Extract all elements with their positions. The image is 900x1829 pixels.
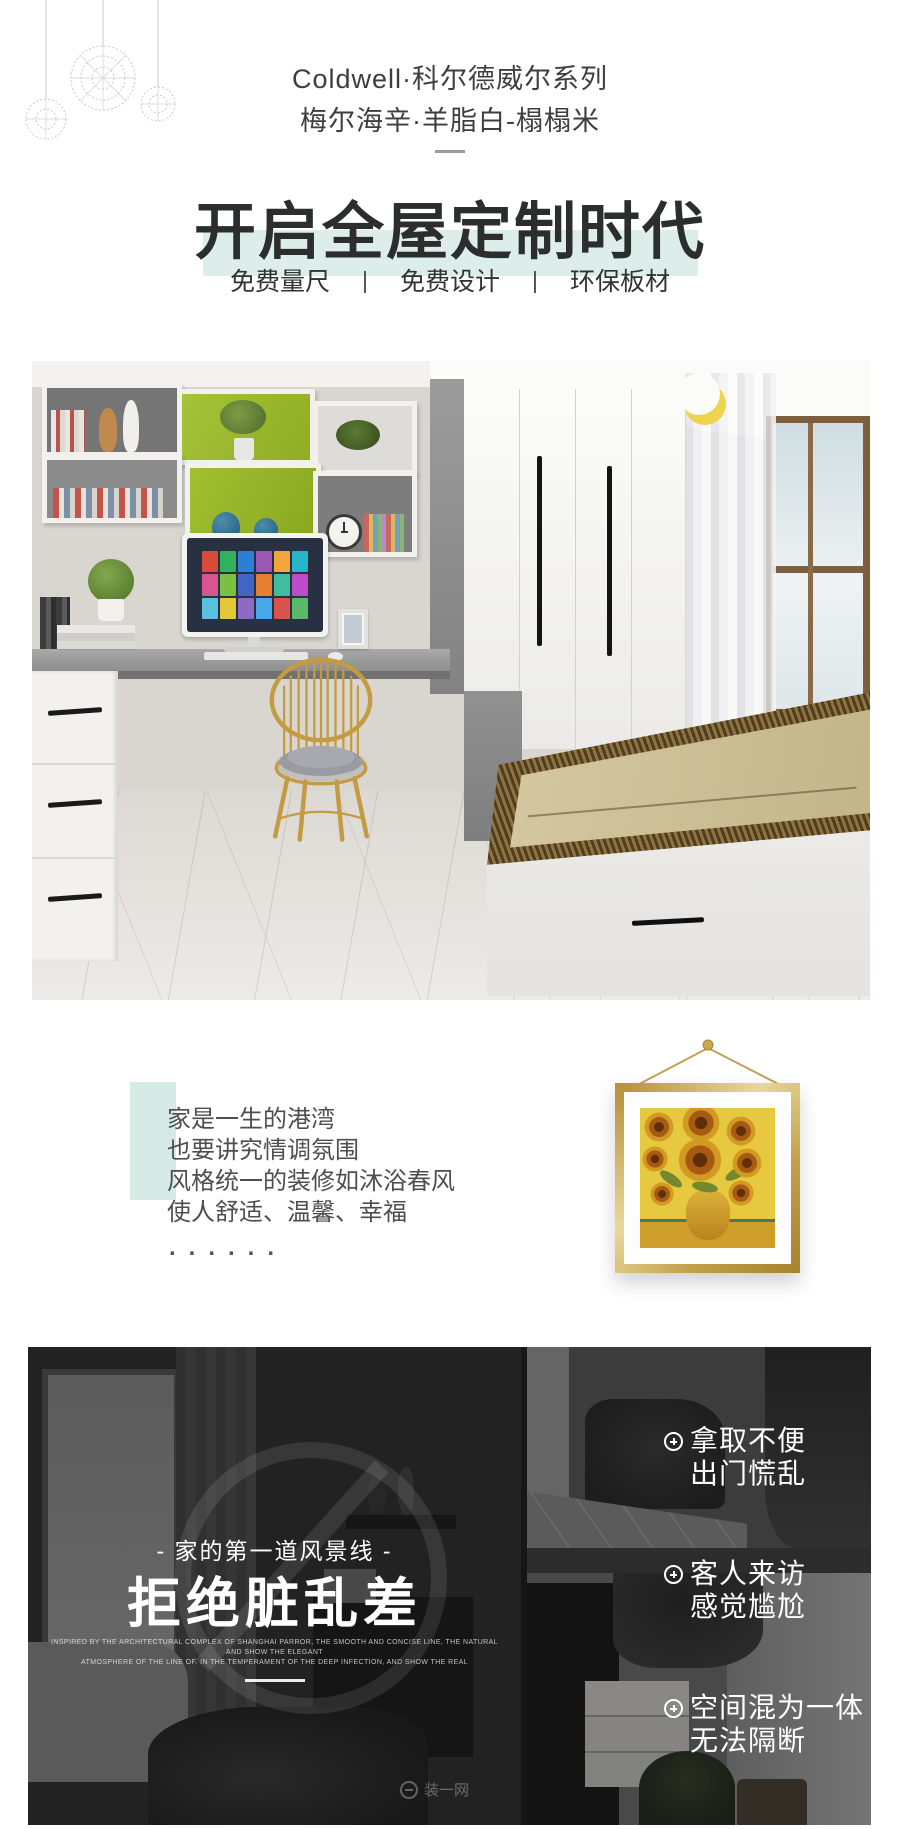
- painting-sunflower: [682, 1108, 720, 1142]
- plant: [336, 420, 380, 450]
- watermark-icon: [400, 1781, 418, 1799]
- gray-partition: [430, 379, 464, 694]
- shelf-box-clock: [313, 471, 417, 557]
- messy-room-photo: - 家的第一道风景线 - 拒绝脏乱差 INSPIRED BY THE ARCHI…: [28, 1347, 521, 1825]
- quote-line: 也要讲究情调氛围: [167, 1135, 455, 1166]
- drawer-seam: [32, 763, 118, 765]
- drawer-handle: [48, 707, 102, 716]
- pain-point-line: 客人来访: [690, 1557, 806, 1590]
- wardrobe-handle: [537, 456, 542, 646]
- plant-pot: [98, 599, 124, 625]
- plant: [220, 400, 266, 434]
- shelf-box-books: [42, 383, 182, 457]
- pain-point-line: 无法隔断: [690, 1724, 864, 1757]
- caption-line: ATMOSPHERE OF THE LINE OF. IN THE TEMPER…: [48, 1658, 501, 1668]
- quote-line: 使人舒适、温馨、幸福: [167, 1197, 455, 1228]
- painting-sunflower: [678, 1138, 722, 1182]
- book-spines: [364, 514, 404, 552]
- feature-item: 免费设计: [400, 262, 500, 298]
- book-spines: [51, 410, 85, 452]
- shelf-box-green: [177, 389, 315, 465]
- drawer-handle: [48, 893, 102, 902]
- sunflower-painting: [615, 1083, 800, 1273]
- painting-sunflower: [650, 1182, 674, 1206]
- pain-point-item: 拿取不便 出门慌乱: [527, 1424, 871, 1494]
- site-watermark: 装一网: [400, 1779, 469, 1800]
- pain-point-line: 拿取不便: [690, 1424, 806, 1457]
- caption-line: INSPIRED BY THE ARCHITECTURAL COMPLEX OF…: [48, 1638, 501, 1658]
- book-stack: [57, 625, 135, 649]
- pain-point-line: 感觉尴尬: [690, 1590, 806, 1623]
- start-screen-tiles: [192, 543, 318, 627]
- painting-sunflower: [726, 1116, 756, 1146]
- feature-item: 免费量尺: [230, 262, 330, 298]
- pain-point-item: 客人来访 感觉尴尬: [527, 1557, 871, 1627]
- quote-ellipsis: ......: [169, 1234, 287, 1262]
- clock-icon: [326, 514, 362, 550]
- quote-text: 家是一生的港湾 也要讲究情调氛围 风格统一的装修如沐浴春风 使人舒适、温馨、幸福: [167, 1104, 455, 1228]
- drawer-seam: [32, 857, 118, 859]
- promo-page: Coldwell·科尔德威尔系列 梅尔海辛·羊脂白-榻榻米 开启全屋定制时代 免…: [0, 0, 900, 1829]
- white-dash: [245, 1679, 305, 1682]
- quote-line: 风格统一的装修如沐浴春风: [167, 1166, 455, 1197]
- drawer-handle: [48, 799, 102, 808]
- section-headline: 拒绝脏乱差: [28, 1559, 521, 1638]
- painting-vase: [686, 1190, 730, 1240]
- window-bar: [773, 566, 863, 573]
- shelf-box-book-row: [42, 455, 182, 523]
- ceiling-light-mask: [678, 373, 720, 415]
- series-line: 梅尔海辛·羊脂白-榻榻米: [0, 99, 900, 138]
- plant: [88, 559, 134, 603]
- gold-wire-chair: [265, 653, 377, 843]
- vase: [99, 408, 117, 452]
- page-title: 开启全屋定制时代: [0, 181, 900, 271]
- monitor: [182, 533, 328, 637]
- problem-section: - 家的第一道风景线 - 拒绝脏乱差 INSPIRED BY THE ARCHI…: [28, 1347, 871, 1825]
- pain-point-item: 空间混为一体 无法隔断: [527, 1691, 871, 1761]
- plant-pot: [234, 438, 254, 460]
- shelf-box-plant: [313, 401, 417, 475]
- painting-sunflower: [642, 1146, 668, 1172]
- monitor-screen: [187, 538, 323, 632]
- pain-points-column: 拿取不便 出门慌乱 客人来访 感觉尴尬 空间混为一体 无法隔断: [527, 1347, 871, 1825]
- painting-sunflower: [644, 1112, 674, 1142]
- watermark-text: 装一网: [424, 1779, 469, 1800]
- tatami-bed: [487, 651, 870, 996]
- brand-line: Coldwell·科尔德威尔系列: [0, 57, 900, 96]
- vase: [123, 400, 139, 452]
- feature-list: 免费量尺 | 免费设计 | 环保板材: [0, 262, 900, 298]
- drawer-unit: [32, 671, 118, 961]
- plus-icon: [664, 1432, 683, 1451]
- quote-line: 家是一生的港湾: [167, 1104, 455, 1135]
- painting-sunflower: [732, 1148, 762, 1178]
- painting-canvas: [640, 1108, 775, 1248]
- wardrobe-handle: [607, 466, 612, 656]
- room-photo: [32, 361, 870, 1000]
- pain-point-line: 空间混为一体: [690, 1691, 864, 1724]
- feature-item: 环保板材: [570, 262, 670, 298]
- feature-separator: |: [532, 267, 538, 294]
- photo-frame-small: [338, 609, 368, 649]
- book-spines: [53, 488, 163, 518]
- photo-frame-picture: [344, 615, 362, 643]
- divider-line: [435, 150, 465, 153]
- plus-icon: [664, 1565, 683, 1584]
- painting-sunflower: [728, 1180, 754, 1206]
- section-caption: INSPIRED BY THE ARCHITECTURAL COMPLEX OF…: [48, 1638, 501, 1668]
- feature-separator: |: [362, 267, 368, 294]
- pain-point-line: 出门慌乱: [690, 1457, 806, 1490]
- plus-icon: [664, 1699, 683, 1718]
